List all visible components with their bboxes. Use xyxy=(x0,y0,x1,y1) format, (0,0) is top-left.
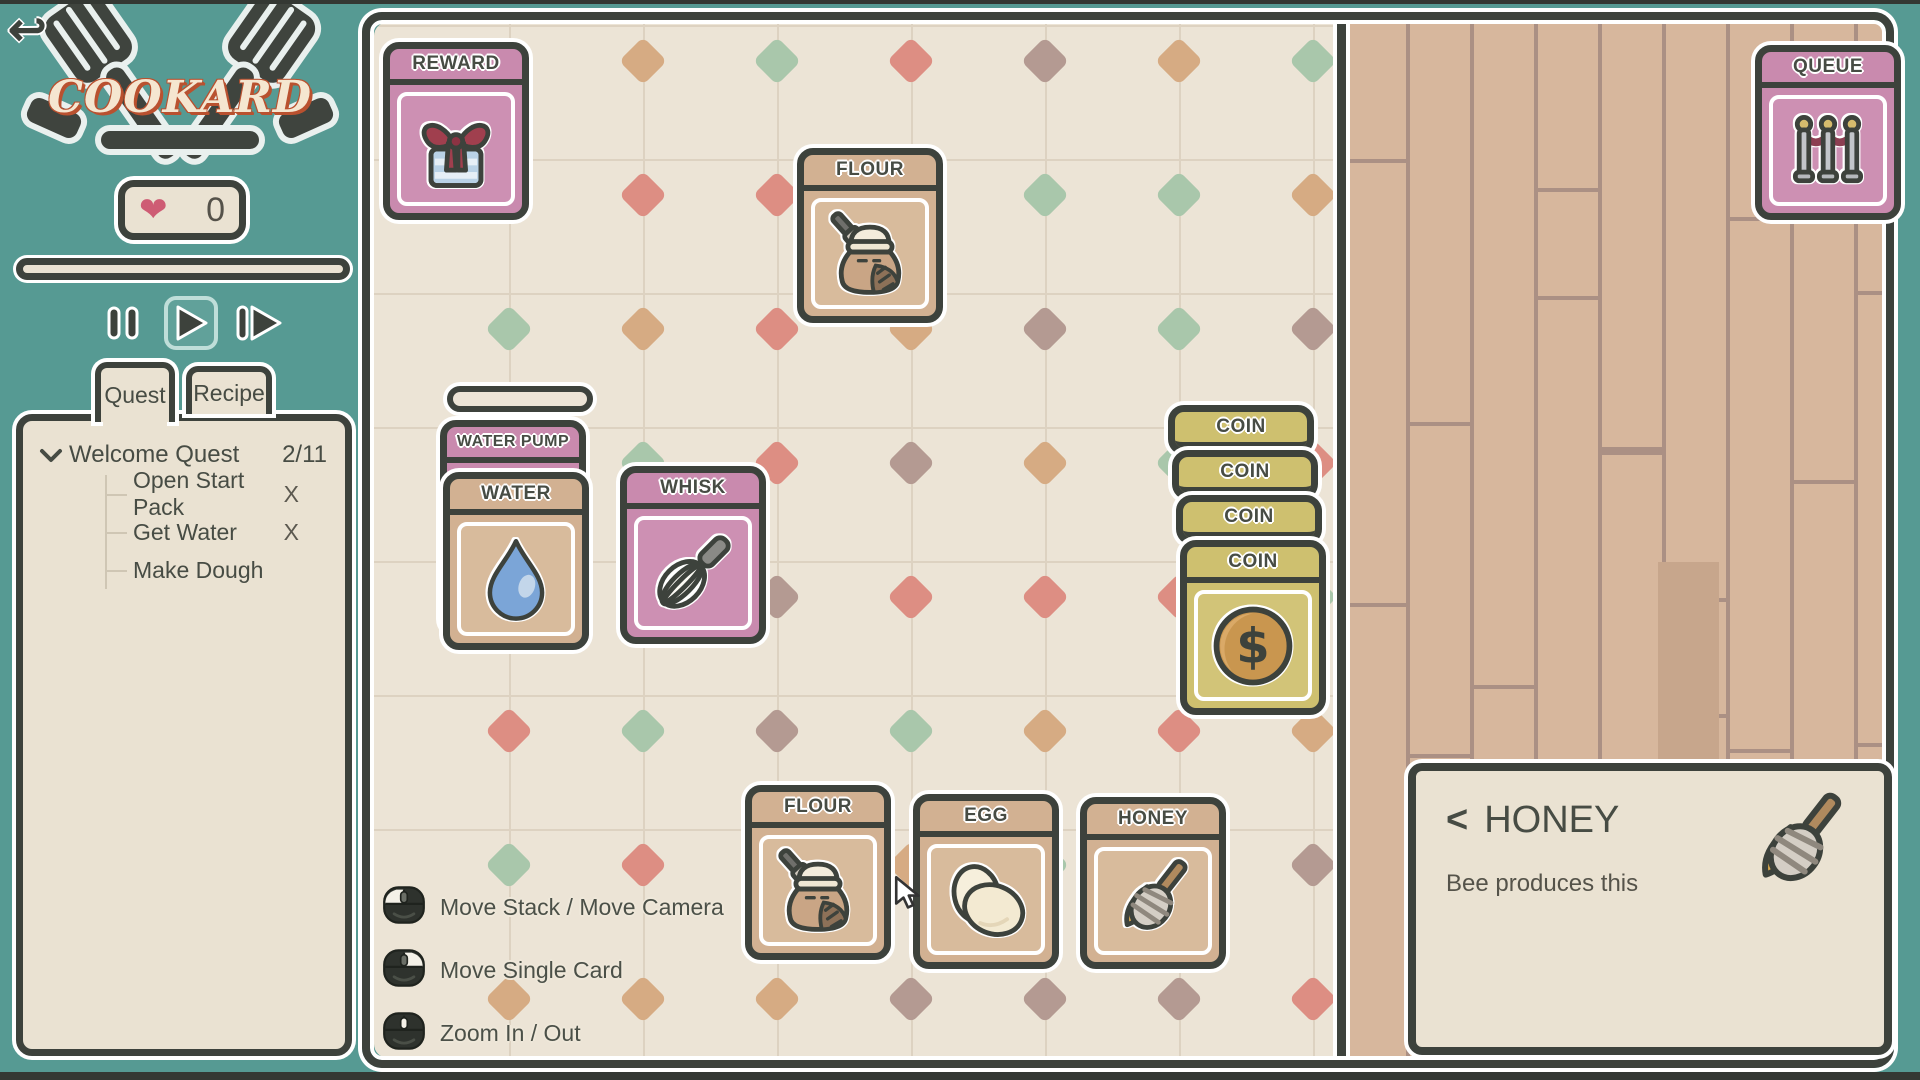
quest-item[interactable]: Get WaterX xyxy=(107,513,327,551)
card-title: COIN xyxy=(1216,416,1266,438)
card-info-panel: < HONEY Bee produces this xyxy=(1408,763,1892,1055)
tile-diamond xyxy=(1021,975,1069,1023)
game-logo: COOKARD xyxy=(20,0,340,175)
water-drop-icon xyxy=(471,531,561,627)
quest-item-label: Make Dough xyxy=(133,557,263,584)
card-title: WATER xyxy=(481,483,551,505)
tile-diamond xyxy=(485,707,533,755)
tile-diamond xyxy=(887,37,935,85)
plank-seam xyxy=(1346,603,1407,607)
tile-diamond xyxy=(887,707,935,755)
plank-seam xyxy=(1474,685,1535,689)
hint-row: Move Stack / Move Camera xyxy=(382,886,724,929)
quest-item[interactable]: Open Start PackX xyxy=(107,475,327,513)
tile-diamond xyxy=(753,305,801,353)
hearts-counter: ❤ 0 xyxy=(118,180,246,240)
card-honey[interactable]: HONEY xyxy=(1080,797,1226,969)
play-icon xyxy=(172,303,210,343)
card-art xyxy=(634,516,752,630)
speed-controls xyxy=(96,296,286,350)
production-progress-pill xyxy=(447,386,593,412)
tile-diamond xyxy=(619,305,667,353)
honey-dipper-icon xyxy=(1738,785,1858,905)
dark-plank xyxy=(1658,562,1719,762)
tab-recipe[interactable]: Recipe xyxy=(186,366,272,414)
card-flour[interactable]: FLOUR xyxy=(745,785,891,960)
heart-icon: ❤ xyxy=(139,193,168,227)
plank-seam xyxy=(1410,754,1471,758)
quest-items: Open Start PackXGet WaterXMake Dough xyxy=(105,475,327,589)
tile-diamond xyxy=(1289,171,1337,219)
quest-panel: Welcome Quest 2/11 Open Start PackXGet W… xyxy=(16,414,352,1056)
whisk-icon xyxy=(645,525,741,621)
card-title: REWARD xyxy=(412,53,499,75)
card-art xyxy=(811,198,929,309)
card-coin[interactable]: COIN xyxy=(1176,495,1322,545)
tile-diamond xyxy=(1021,305,1069,353)
card-reward[interactable]: REWARD xyxy=(383,42,529,220)
card-queue[interactable]: QUEUE xyxy=(1755,45,1901,220)
card-water[interactable]: WATER xyxy=(443,472,589,650)
tile-diamond xyxy=(1289,841,1337,889)
pause-icon xyxy=(106,304,140,342)
card-art xyxy=(759,835,877,946)
quest-item-label: Get Water xyxy=(133,519,237,546)
hint-label: Move Stack / Move Camera xyxy=(440,894,724,921)
tile-diamond xyxy=(1155,37,1203,85)
gift-icon xyxy=(408,101,504,197)
card-title: FLOUR xyxy=(836,159,904,181)
chevron-down-icon xyxy=(39,445,63,465)
tile-diamond xyxy=(753,171,801,219)
card-title: COIN xyxy=(1220,461,1270,483)
quest-item[interactable]: Make Dough xyxy=(107,551,327,589)
info-title: HONEY xyxy=(1484,799,1619,842)
tab-recipe-label: Recipe xyxy=(193,380,265,407)
tile-diamond xyxy=(619,171,667,219)
plank-seam xyxy=(1346,159,1407,163)
mouse-wheel-icon xyxy=(382,1012,426,1050)
card-title: EGG xyxy=(964,805,1008,827)
card-title: WATER PUMP xyxy=(457,433,569,451)
tile-diamond xyxy=(753,975,801,1023)
tile-diamond xyxy=(753,37,801,85)
tab-patch xyxy=(103,410,167,428)
plank-seam xyxy=(1794,480,1855,484)
honey-dipper-icon xyxy=(1105,853,1201,949)
hint-row: Move Single Card xyxy=(382,949,724,992)
tile-diamond xyxy=(1155,171,1203,219)
card-art xyxy=(927,844,1045,955)
plank-seam xyxy=(1858,743,1886,747)
card-title: COIN xyxy=(1224,506,1274,528)
tile-diamond xyxy=(619,707,667,755)
fast-forward-icon xyxy=(235,303,283,343)
card-coin[interactable]: COIN $ xyxy=(1180,540,1326,715)
card-whisk[interactable]: WHISK xyxy=(620,466,766,644)
hearts-value: 0 xyxy=(206,191,225,230)
tile-diamond xyxy=(1021,171,1069,219)
board-divider xyxy=(1337,20,1346,1060)
card-title: QUEUE xyxy=(1793,56,1863,78)
tile-diamond xyxy=(1155,975,1203,1023)
card-title: WHISK xyxy=(660,477,726,499)
tab-quest-label: Quest xyxy=(104,382,165,409)
back-button[interactable]: ↩ xyxy=(8,2,47,56)
svg-text:$: $ xyxy=(1236,618,1269,674)
progress-bar xyxy=(16,258,350,280)
tile-diamond xyxy=(1021,573,1069,621)
card-title: HONEY xyxy=(1118,808,1188,830)
plank-seam xyxy=(1538,188,1599,192)
tile-diamond xyxy=(753,707,801,755)
card-title: FLOUR xyxy=(784,796,852,818)
card-art: $ xyxy=(1194,590,1312,701)
hint-label: Move Single Card xyxy=(440,957,623,984)
fast-forward-button[interactable] xyxy=(232,296,286,350)
plank-seam xyxy=(1410,422,1471,426)
tile-diamond xyxy=(1289,37,1337,85)
egg-icon xyxy=(938,852,1034,948)
screen-edge-top xyxy=(0,0,1920,4)
play-button[interactable] xyxy=(164,296,218,350)
queue-stanchions-icon xyxy=(1780,103,1876,199)
plank-seam xyxy=(1730,749,1791,753)
plank-seam xyxy=(1858,291,1886,295)
tile-diamond xyxy=(1021,707,1069,755)
plank-seam xyxy=(1602,447,1663,451)
tile-diamond xyxy=(619,37,667,85)
tile-diamond xyxy=(485,841,533,889)
tile-diamond xyxy=(1021,37,1069,85)
game-title: COOKARD xyxy=(20,72,340,123)
game-stage: { "app": { "title": "COOKARD" }, "hud": … xyxy=(0,0,1920,1080)
coin-icon: $ xyxy=(1205,598,1301,694)
mouse-cursor xyxy=(893,876,923,915)
tile-diamond xyxy=(485,305,533,353)
card-art xyxy=(1769,95,1887,206)
info-back-chevron[interactable]: < xyxy=(1446,799,1468,842)
plank-seam xyxy=(1602,451,1663,455)
card-art xyxy=(457,522,575,636)
mouse-right-icon xyxy=(382,949,426,987)
card-title: COIN xyxy=(1228,551,1278,573)
card-flour[interactable]: FLOUR xyxy=(797,148,943,323)
tile-diamond xyxy=(1289,305,1337,353)
card-coin[interactable]: COIN xyxy=(1168,405,1314,455)
hint-row: Zoom In / Out xyxy=(382,1012,724,1055)
quest-item-status: X xyxy=(284,481,299,508)
tile-diamond xyxy=(619,841,667,889)
tile-diamond xyxy=(1289,975,1337,1023)
tile-diamond xyxy=(1021,439,1069,487)
card-art xyxy=(1094,847,1212,955)
quest-progress: 2/11 xyxy=(282,441,327,469)
tile-diamond xyxy=(1155,305,1203,353)
plank-seam xyxy=(1538,296,1599,300)
tile-diamond xyxy=(887,573,935,621)
flour-sack-icon xyxy=(770,843,866,939)
quest-item-status: X xyxy=(284,519,299,546)
mouse-left-icon xyxy=(382,886,426,924)
screen-edge-bottom xyxy=(0,1072,1920,1080)
hint-label: Zoom In / Out xyxy=(440,1020,581,1047)
card-egg[interactable]: EGG xyxy=(913,794,1059,969)
tile-diamond xyxy=(887,975,935,1023)
quest-title: Welcome Quest xyxy=(69,441,239,469)
quest-header[interactable]: Welcome Quest 2/11 xyxy=(39,441,327,469)
mouse-hints: Move Stack / Move Camera Move Single Car… xyxy=(382,886,724,1055)
card-coin[interactable]: COIN xyxy=(1172,450,1318,500)
flour-sack-icon xyxy=(822,206,918,302)
card-art xyxy=(397,92,515,206)
pause-button[interactable] xyxy=(96,296,150,350)
tile-diamond xyxy=(887,439,935,487)
